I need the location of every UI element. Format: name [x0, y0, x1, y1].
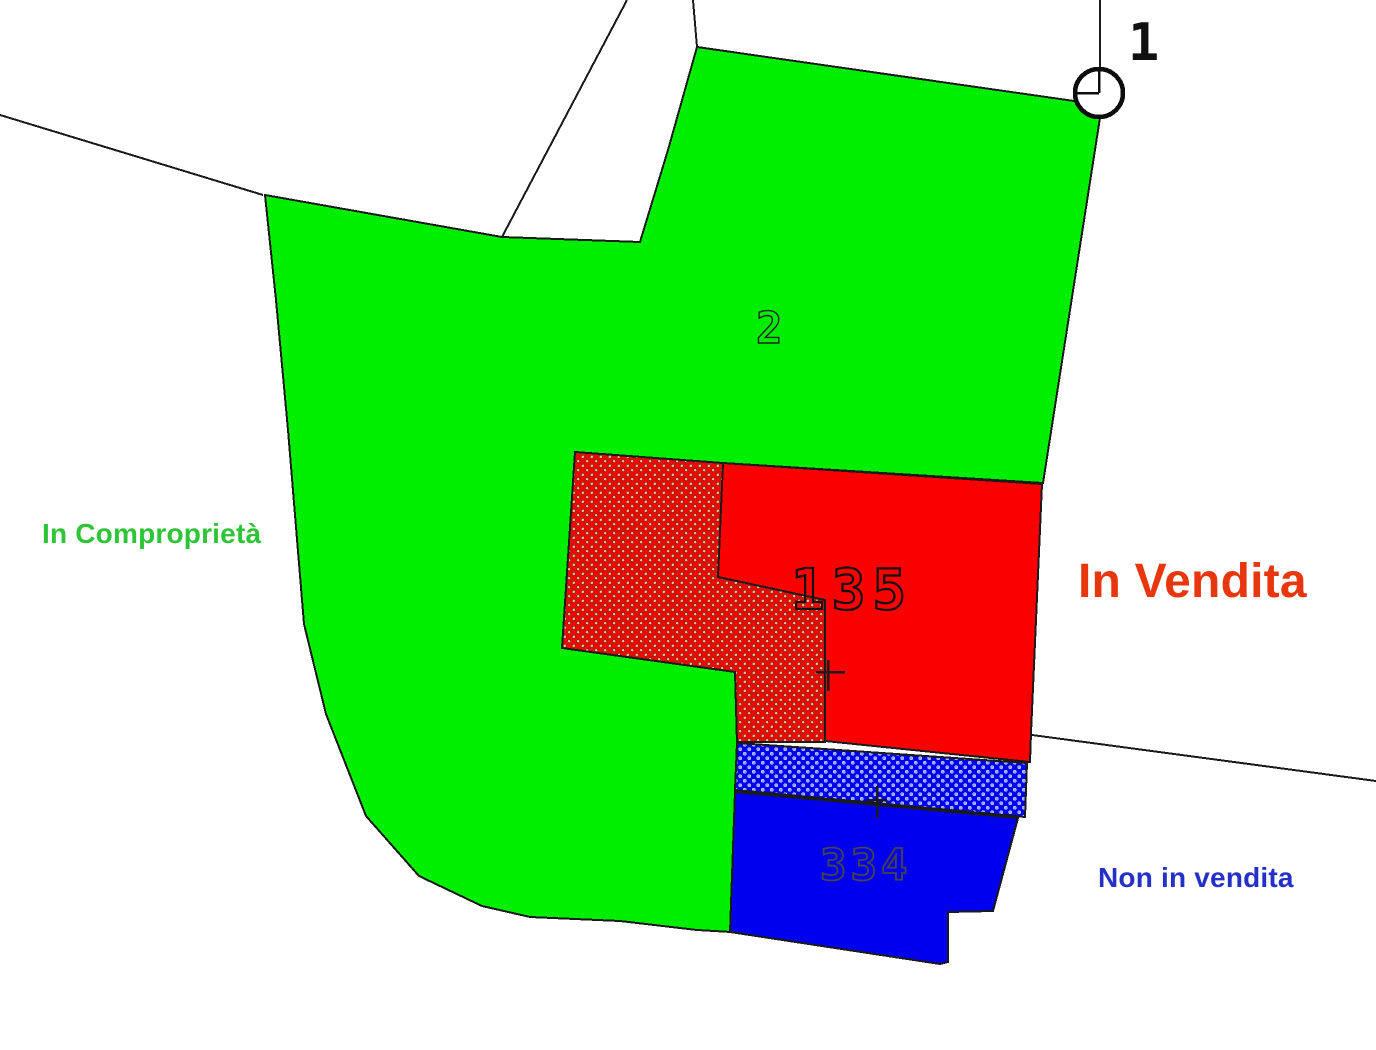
survey-point-1-marker — [1075, 69, 1123, 117]
boundary-line-notch-top — [693, 0, 697, 47]
parcel-number-1: 1 — [1128, 13, 1159, 73]
legend-in-comproprieta: In Comproprietà — [42, 520, 261, 548]
parcel-number-135: 135 — [791, 558, 913, 623]
legend-in-vendita: In Vendita — [1078, 558, 1307, 606]
cadastral-map-page: 1 2 135 334 In Comproprietà In Vendita N… — [0, 0, 1376, 1050]
parcel-number-334: 334 — [820, 840, 911, 891]
parcel-number-2: 2 — [756, 303, 783, 354]
boundary-line-topleft — [0, 115, 263, 195]
boundary-line-notch-diagonal — [502, 0, 627, 237]
legend-non-in-vendita: Non in vendita — [1098, 864, 1294, 892]
boundary-line-right — [1032, 735, 1376, 781]
